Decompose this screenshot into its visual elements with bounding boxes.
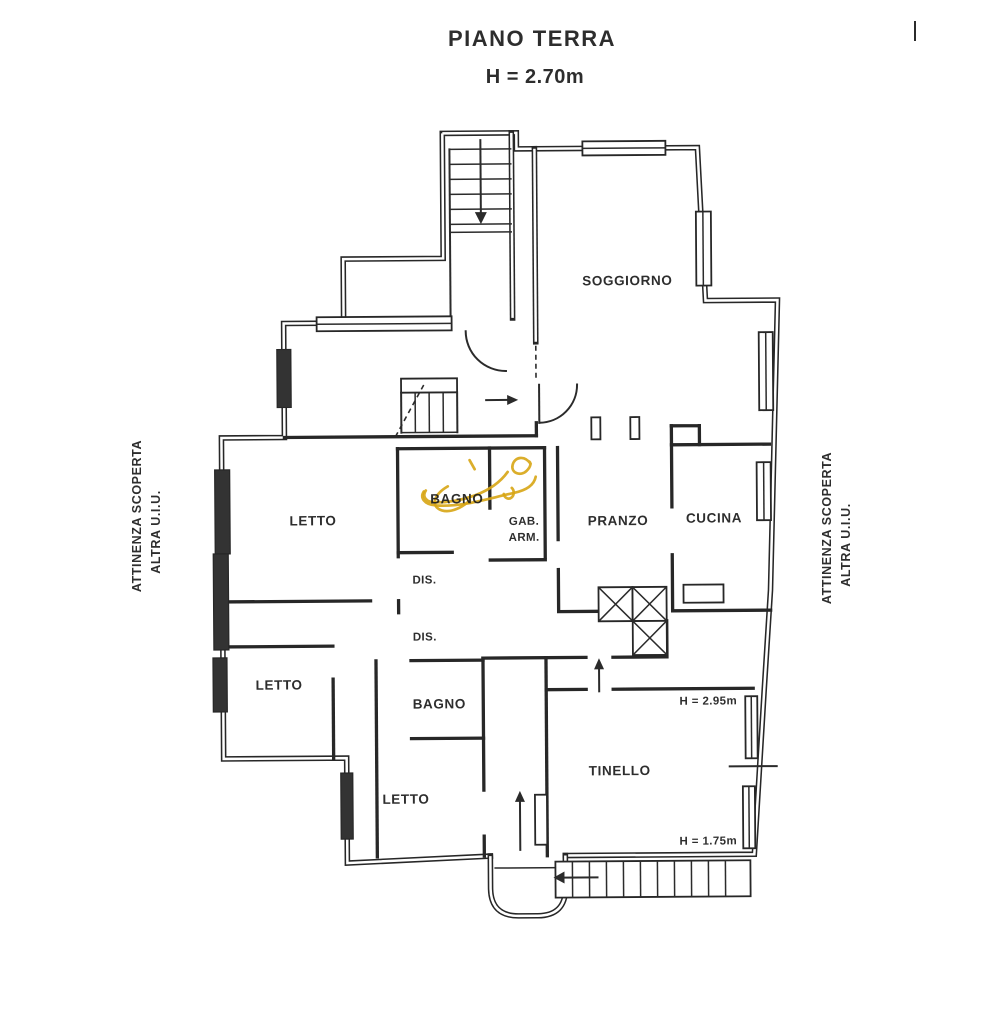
- room-label-soggiorno: SOGGIORNO: [582, 273, 672, 289]
- entrance-door-arc: [466, 331, 506, 371]
- hall-door-arc: [539, 384, 577, 422]
- room-label-letto-3: LETTO: [382, 791, 429, 806]
- hall-right-arrow-icon: [507, 395, 518, 405]
- floor-plan-drawing: PIANO TERRA H = 2.70m ATTINENZA SCOPERTA…: [0, 0, 1000, 1027]
- room-label-gab: GAB.: [509, 516, 539, 528]
- room-label-arm: ARM.: [509, 532, 540, 544]
- stair-down-arrow-icon: [475, 212, 487, 224]
- left-margin-note: ATTINENZA SCOPERTA ALTRA U.I.U.: [130, 440, 163, 592]
- staircase-hall: [395, 378, 457, 436]
- room-label-letto-2: LETTO: [256, 677, 303, 692]
- room-label-bagno-1: BAGNO: [430, 491, 483, 506]
- plan-title: PIANO TERRA: [448, 26, 616, 51]
- annotation-h175: H = 1.75m: [679, 835, 737, 847]
- entrance-porch: [490, 856, 565, 917]
- right-margin-line2: ALTRA U.I.U.: [839, 503, 853, 587]
- right-margin-note: ATTINENZA SCOPERTA ALTRA U.I.U.: [820, 452, 853, 604]
- left-margin-line2: ALTRA U.I.U.: [149, 490, 163, 574]
- height-annotations: H = 2.95m H = 1.75m: [678, 695, 738, 847]
- room-label-dis-2: DIS.: [413, 631, 437, 643]
- staircase-top: [449, 140, 512, 318]
- room-label-letto-1: LETTO: [289, 513, 336, 528]
- room-label-pranzo: PRANZO: [588, 513, 649, 528]
- right-margin-line1: ATTINENZA SCOPERTA: [820, 452, 834, 604]
- room-label-tinello: TINELLO: [589, 763, 651, 778]
- door-arcs: [466, 330, 578, 423]
- elevator-shaft: [598, 587, 666, 655]
- tinello-entry-arrow-icon: [594, 658, 604, 669]
- colonnade-pillars: [591, 417, 639, 439]
- room-label-bagno-2: BAGNO: [413, 696, 466, 711]
- staircase-external-bottom: [553, 860, 750, 897]
- windows: [209, 140, 777, 852]
- room-label-dis-1: DIS.: [412, 574, 436, 586]
- scanned-floor-plan-page: PIANO TERRA H = 2.70m ATTINENZA SCOPERTA…: [0, 0, 1000, 1027]
- annotation-h295: H = 2.95m: [679, 695, 737, 707]
- left-margin-line1: ATTINENZA SCOPERTA: [130, 440, 144, 592]
- room-label-cucina: CUCINA: [686, 510, 742, 525]
- plan-height-note: H = 2.70m: [486, 66, 584, 88]
- room-labels: SOGGIORNO LETTO BAGNO GAB. ARM. PRANZO C…: [253, 272, 744, 807]
- porch-entry-arrow-icon: [515, 791, 525, 802]
